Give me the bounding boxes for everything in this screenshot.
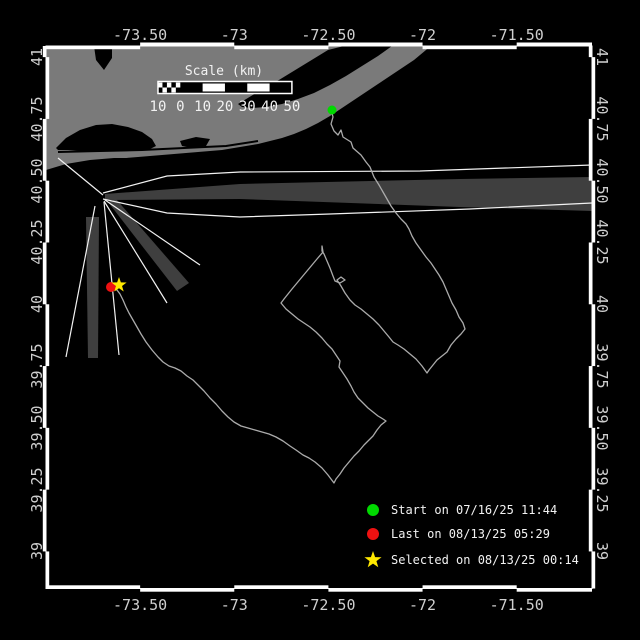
border-left-seg-9 [46, 551, 49, 588]
border-bottom-seg-2 [234, 585, 328, 588]
legend-last-dot [367, 528, 379, 540]
y-tick-left-0: 41 [29, 25, 45, 89]
legend-label-start: Start on 07/16/25 11:44 [391, 503, 557, 517]
scalebar-check [176, 83, 180, 88]
border-left-seg-7 [46, 428, 49, 490]
border-top-seg-0 [46, 46, 140, 49]
shipping-lane-zone-2 [86, 217, 99, 358]
x-tick-top-4: -71.50 [477, 27, 557, 43]
y-tick-left-8: 39 [29, 519, 45, 583]
y-tick-right-4: 40 [594, 272, 610, 336]
scalebar-check [167, 83, 171, 88]
y-tick-right-6: 39.50 [594, 396, 610, 460]
y-tick-right-2: 40.50 [594, 149, 610, 213]
y-tick-right-7: 39.25 [594, 458, 610, 522]
scalebar-label-6: 50 [277, 99, 307, 115]
map-canvas[interactable] [0, 0, 640, 640]
border-left-seg-3 [46, 181, 49, 243]
scalebar-box-1 [203, 84, 225, 92]
start-position-marker[interactable] [328, 106, 337, 115]
x-tick-top-1: -73 [194, 27, 274, 43]
scalebar-title: Scale (km) [164, 64, 284, 79]
x-tick-top-3: -72 [383, 27, 463, 43]
x-tick-bottom-4: -71.50 [477, 597, 557, 613]
y-tick-left-4: 40 [29, 272, 45, 336]
shipping-lane-line-5 [104, 202, 119, 355]
shipping-lane-zone-0 [105, 177, 592, 211]
border-bottom-seg-3 [328, 589, 422, 592]
y-tick-left-5: 39.75 [29, 334, 45, 398]
border-top-seg-4 [423, 46, 517, 49]
y-tick-left-2: 40.50 [29, 149, 45, 213]
scalebar-check [158, 83, 162, 88]
border-bottom-seg-5 [517, 589, 592, 592]
y-tick-left-6: 39.50 [29, 396, 45, 460]
x-tick-top-0: -73.50 [100, 27, 180, 43]
x-tick-bottom-0: -73.50 [100, 597, 180, 613]
y-tick-right-1: 40.75 [594, 87, 610, 151]
shipping-lane-zone-1 [108, 199, 189, 291]
shipping-lane-line-0 [58, 158, 103, 195]
legend-start-dot [367, 504, 379, 516]
y-tick-left-1: 40.75 [29, 87, 45, 151]
x-tick-bottom-3: -72 [383, 597, 463, 613]
x-tick-bottom-2: -72.50 [288, 597, 368, 613]
legend-label-last: Last on 08/13/25 05:29 [391, 527, 550, 541]
border-bottom-seg-4 [423, 585, 517, 588]
border-right-seg-2 [589, 119, 592, 181]
y-tick-left-7: 39.25 [29, 458, 45, 522]
scalebar-check [171, 88, 175, 93]
glider-track-line[interactable] [111, 109, 465, 483]
scalebar-box-3 [247, 84, 269, 92]
border-right-seg-8 [589, 490, 592, 552]
legend-label-selected: Selected on 08/13/25 00:14 [391, 553, 579, 567]
border-left-seg-1 [46, 57, 49, 119]
border-left-seg-5 [46, 304, 49, 366]
x-tick-bottom-1: -73 [194, 597, 274, 613]
border-bottom-seg-0 [46, 585, 140, 588]
y-tick-right-8: 39 [594, 519, 610, 583]
legend-selected-star [364, 551, 381, 567]
y-tick-left-3: 40.25 [29, 210, 45, 274]
border-right-seg-0 [589, 46, 592, 57]
scalebar-check [162, 88, 166, 93]
y-tick-right-3: 40.25 [594, 210, 610, 274]
x-tick-top-2: -72.50 [288, 27, 368, 43]
y-tick-right-0: 41 [594, 25, 610, 89]
border-top-seg-2 [234, 46, 328, 49]
border-right-seg-4 [589, 242, 592, 304]
glider-track-map-figure: -73.50-73-72.50-72-71.50 -73.50-73-72.50… [0, 0, 640, 640]
border-right-seg-6 [589, 366, 592, 428]
border-bottom-seg-1 [140, 589, 234, 592]
y-tick-right-5: 39.75 [594, 334, 610, 398]
